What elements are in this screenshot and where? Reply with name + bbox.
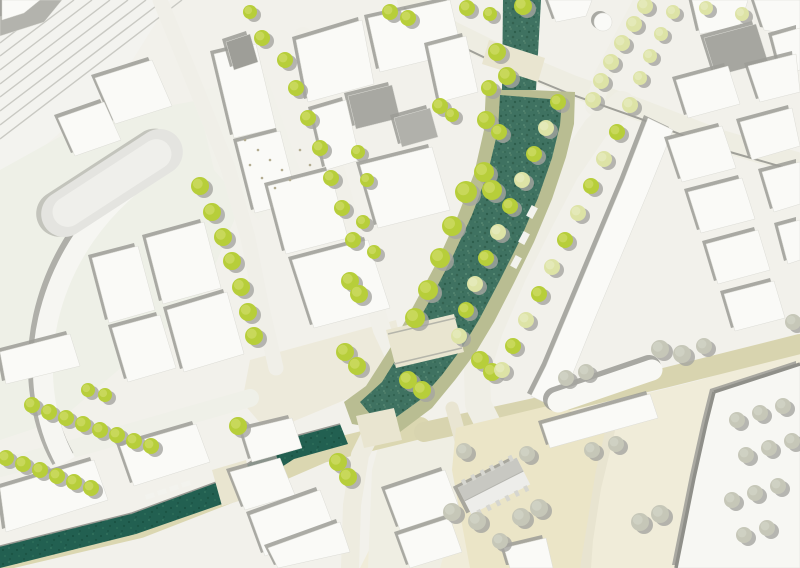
tree-highlight: [34, 464, 43, 473]
tree-highlight: [605, 56, 614, 65]
tree-highlight: [484, 8, 492, 16]
tree-highlight: [43, 406, 52, 415]
tree-highlight: [634, 72, 642, 80]
tree-highlight: [244, 6, 252, 14]
tree-highlight: [726, 494, 735, 503]
tree-highlight: [247, 329, 257, 339]
pedestrian-dot: [257, 149, 260, 152]
tree-highlight: [616, 37, 625, 46]
tree-highlight: [331, 455, 341, 465]
tree-highlight: [514, 510, 524, 520]
tree-highlight: [470, 514, 480, 524]
masterplan-site-plan: [0, 0, 800, 568]
tree-highlight: [279, 54, 288, 63]
tree-highlight: [99, 389, 107, 397]
tree-highlight: [193, 179, 203, 189]
pedestrian-dot: [299, 149, 302, 152]
tree-highlight: [415, 383, 425, 393]
pedestrian-dot: [274, 187, 277, 190]
pedestrian-dot: [249, 164, 252, 167]
tree-highlight: [205, 205, 215, 215]
tree-highlight: [598, 153, 607, 162]
tree-highlight: [700, 2, 708, 10]
tree-highlight: [490, 45, 500, 55]
tree-highlight: [473, 353, 483, 363]
tree-highlight: [85, 482, 94, 491]
tree-highlight: [368, 246, 376, 254]
tree-highlight: [639, 0, 648, 8]
tree-highlight: [777, 400, 786, 409]
tree-highlight: [357, 216, 365, 224]
tree-highlight: [347, 234, 356, 243]
tree-highlight: [216, 230, 226, 240]
tree-highlight: [128, 435, 137, 444]
tree-highlight: [610, 438, 619, 447]
tree-highlight: [234, 280, 244, 290]
tree-highlight: [256, 32, 265, 41]
tree-highlight: [516, 174, 525, 183]
pedestrian-dot: [281, 169, 284, 172]
tree-highlight: [241, 305, 251, 315]
tree-highlight: [94, 424, 103, 433]
tree-highlight: [352, 287, 362, 297]
tree-highlight: [479, 113, 489, 123]
tree-highlight: [453, 330, 462, 339]
tree-highlight: [483, 82, 492, 91]
tree-highlight: [772, 480, 781, 489]
tree-highlight: [336, 202, 345, 211]
tree-highlight: [559, 234, 568, 243]
tree-highlight: [560, 372, 569, 381]
tree-highlight: [231, 419, 241, 429]
tree-highlight: [26, 399, 35, 408]
tree-highlight: [476, 164, 487, 175]
tree-highlight: [595, 75, 604, 84]
tree-highlight: [17, 458, 26, 467]
tree-highlight: [633, 515, 643, 525]
tree-highlight: [401, 373, 411, 383]
tree-highlight: [628, 18, 637, 27]
tree-highlight: [763, 442, 772, 451]
pedestrian-dot: [269, 159, 272, 162]
tree-highlight: [225, 254, 235, 264]
tree-highlight: [787, 316, 796, 325]
tree-highlight: [587, 94, 596, 103]
round-building: [594, 13, 612, 31]
tree-highlight: [480, 252, 489, 261]
tree-highlight: [77, 418, 86, 427]
tree-highlight: [461, 2, 470, 11]
tree-highlight: [325, 172, 334, 181]
tree-highlight: [469, 278, 478, 287]
tree-highlight: [338, 345, 348, 355]
tree-highlight: [60, 412, 69, 421]
tree-highlight: [761, 522, 770, 531]
tree-highlight: [520, 314, 529, 323]
tree-highlight: [314, 142, 323, 151]
tree-highlight: [586, 444, 595, 453]
tree-highlight: [653, 507, 663, 517]
tree-highlight: [528, 148, 537, 157]
pedestrian-dot: [289, 179, 292, 182]
tree-highlight: [361, 174, 369, 182]
tree-highlight: [407, 310, 418, 321]
tree-highlight: [644, 50, 652, 58]
pedestrian-dot: [244, 139, 247, 142]
tree-highlight: [402, 12, 411, 21]
tree-highlight: [493, 126, 502, 135]
tree-highlight: [290, 82, 299, 91]
tree-highlight: [494, 535, 503, 544]
tree-highlight: [740, 449, 749, 458]
tree-highlight: [655, 28, 663, 36]
tree-highlight: [434, 100, 443, 109]
tree-highlight: [446, 109, 454, 117]
tree-highlight: [736, 8, 744, 16]
tree-highlight: [754, 407, 763, 416]
tree-highlight: [145, 440, 154, 449]
tree-highlight: [585, 180, 594, 189]
tree-highlight: [496, 364, 505, 373]
tree-highlight: [540, 122, 549, 131]
tree-highlight: [460, 304, 469, 313]
tree-highlight: [352, 146, 360, 154]
tree-highlight: [492, 226, 501, 235]
tree-highlight: [384, 6, 393, 15]
tree-highlight: [738, 529, 747, 538]
tree-highlight: [572, 207, 581, 216]
tree-highlight: [444, 218, 455, 229]
tree-highlight: [51, 470, 60, 479]
tree-highlight: [786, 435, 795, 444]
pedestrian-dot: [309, 164, 312, 167]
tree-highlight: [82, 384, 90, 392]
tree-highlight: [485, 365, 495, 375]
tree-highlight: [457, 183, 469, 195]
tree-highlight: [484, 182, 495, 193]
tree-highlight: [504, 200, 513, 209]
tree-highlight: [580, 366, 589, 375]
tree-highlight: [111, 429, 120, 438]
tree-highlight: [532, 501, 542, 511]
tree-highlight: [350, 359, 360, 369]
tree-highlight: [458, 445, 467, 454]
tree-highlight: [653, 342, 663, 352]
tree-highlight: [675, 347, 685, 357]
tree-highlight: [507, 340, 516, 349]
tree-highlight: [0, 452, 8, 461]
tree-highlight: [546, 261, 555, 270]
tree-highlight: [521, 448, 530, 457]
masterplan-svg: [0, 0, 800, 568]
tree-highlight: [420, 282, 431, 293]
tree-highlight: [749, 487, 758, 496]
tree-highlight: [698, 340, 707, 349]
tree-highlight: [343, 274, 353, 284]
tree-highlight: [432, 250, 443, 261]
tree-highlight: [624, 99, 633, 108]
tree-highlight: [500, 69, 510, 79]
tree-highlight: [68, 476, 77, 485]
pedestrian-dot: [261, 177, 264, 180]
tree-highlight: [611, 126, 620, 135]
tree-highlight: [341, 470, 351, 480]
tree-highlight: [533, 288, 542, 297]
tree-highlight: [302, 112, 311, 121]
tree-highlight: [731, 414, 740, 423]
tree-highlight: [552, 96, 561, 105]
tree-highlight: [667, 6, 675, 14]
tree-highlight: [445, 505, 455, 515]
